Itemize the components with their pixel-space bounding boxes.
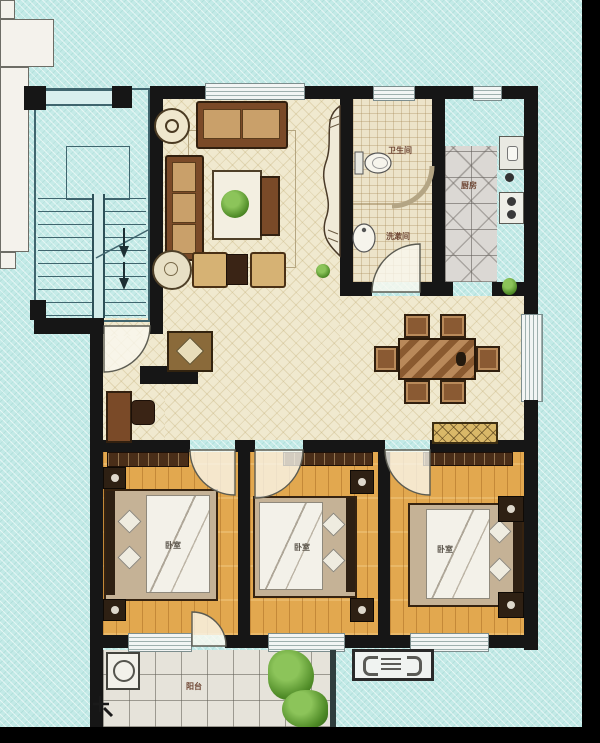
toilet — [355, 152, 391, 174]
stair-marks — [96, 228, 148, 290]
floor-plan-photo: 卫生间 洗漱间 厨房 卧室 卧室 — [0, 0, 600, 743]
water-tap — [93, 696, 112, 716]
bedroom2-door-swing — [255, 450, 303, 498]
wash-basin — [353, 224, 375, 252]
door-swings — [104, 244, 430, 646]
stair-break-line — [96, 230, 148, 258]
bedroom3-door-swing — [385, 450, 430, 495]
stair-arrowhead — [119, 278, 129, 290]
balcony-door-swing — [192, 612, 226, 646]
washroom-door-swing — [372, 244, 420, 292]
bedroom1-door-swing — [190, 450, 235, 495]
plan-linework-overlay — [0, 0, 600, 743]
stair-arrowhead — [119, 246, 129, 258]
photo-right-black-bar — [582, 0, 600, 743]
photo-bottom-black-bar — [0, 727, 600, 743]
entry-door-swing — [104, 326, 150, 372]
shower-arc — [392, 166, 432, 206]
